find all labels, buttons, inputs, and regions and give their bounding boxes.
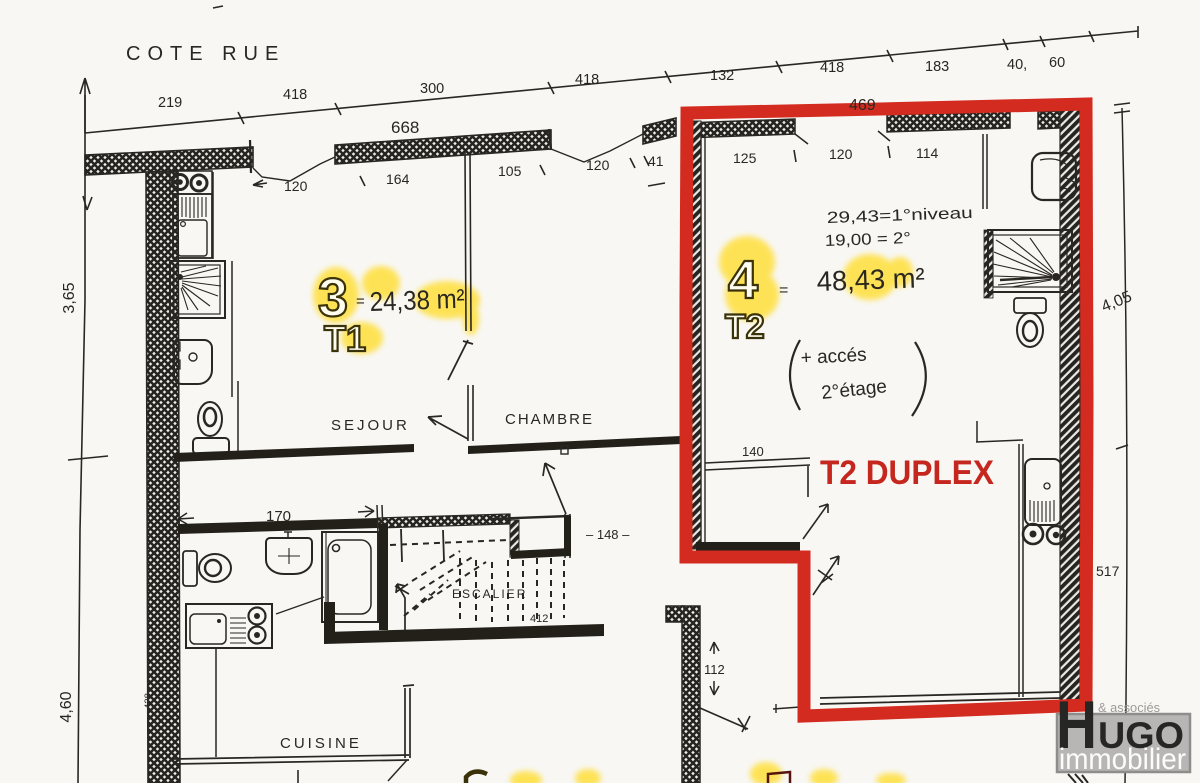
svg-text:418: 418 xyxy=(820,60,844,76)
svg-text:418: 418 xyxy=(575,72,599,88)
svg-text:19,00 = 2°: 19,00 = 2° xyxy=(825,230,912,250)
svg-text:COTE RUE: COTE RUE xyxy=(126,43,285,65)
svg-text:517: 517 xyxy=(1096,563,1120,579)
svg-text:112: 112 xyxy=(704,662,725,677)
svg-text:4,60: 4,60 xyxy=(58,691,75,722)
svg-text:132: 132 xyxy=(710,68,734,84)
svg-text:48,43 m²: 48,43 m² xyxy=(816,262,925,297)
svg-text:+ accés: + accés xyxy=(800,345,867,369)
svg-text:CUISINE: CUISINE xyxy=(280,735,362,752)
svg-text:668: 668 xyxy=(391,118,419,137)
svg-text:219: 219 xyxy=(158,95,182,111)
svg-text:4: 4 xyxy=(728,250,758,310)
svg-text:T1: T1 xyxy=(324,318,366,359)
svg-text:170: 170 xyxy=(266,508,291,525)
svg-text:164: 164 xyxy=(386,171,410,187)
svg-text:CHAMBRE: CHAMBRE xyxy=(505,411,594,428)
svg-text:300: 300 xyxy=(420,81,444,97)
svg-text:60: 60 xyxy=(1049,55,1065,71)
svg-text:=: = xyxy=(779,282,788,299)
svg-text:183: 183 xyxy=(925,59,949,75)
svg-text:418: 418 xyxy=(283,87,307,103)
svg-text:– 148 –: – 148 – xyxy=(586,527,630,542)
svg-text:120: 120 xyxy=(829,146,853,162)
svg-text:40,: 40, xyxy=(1007,57,1027,73)
svg-text:& associés: & associés xyxy=(1098,700,1160,715)
svg-text:24,38 m²: 24,38 m² xyxy=(369,284,465,317)
svg-text:41: 41 xyxy=(648,153,664,169)
svg-text:120: 120 xyxy=(284,178,308,194)
svg-text:3,65: 3,65 xyxy=(61,282,78,313)
svg-text:immobilier: immobilier xyxy=(1059,743,1186,776)
svg-text:125: 125 xyxy=(733,150,757,166)
svg-text:T2 DUPLEX: T2 DUPLEX xyxy=(820,454,994,492)
svg-text:=: = xyxy=(356,293,365,310)
svg-text:T2: T2 xyxy=(725,308,765,346)
svg-text:469: 469 xyxy=(849,97,876,114)
svg-text:ESCALIER: ESCALIER xyxy=(452,587,527,601)
svg-text:412: 412 xyxy=(530,613,548,625)
svg-text:SEJOUR: SEJOUR xyxy=(331,417,410,434)
svg-text:114: 114 xyxy=(916,145,939,161)
svg-text:140: 140 xyxy=(742,444,764,459)
svg-text:105: 105 xyxy=(498,163,522,179)
